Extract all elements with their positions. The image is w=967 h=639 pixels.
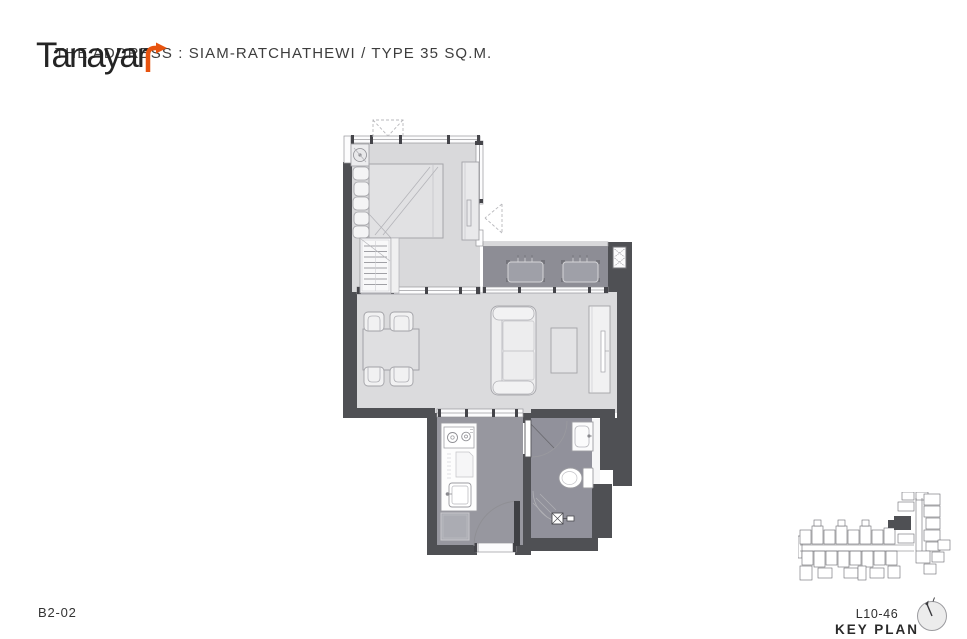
toilet	[559, 468, 593, 488]
bent-arrow-up-right-icon	[141, 41, 168, 73]
key-plan-building-drawing	[798, 492, 956, 604]
pillows	[353, 167, 369, 238]
sofa	[491, 306, 536, 395]
north-compass-icon	[912, 595, 952, 635]
bed	[369, 164, 443, 238]
closet	[462, 162, 479, 240]
coffee-table	[551, 328, 577, 373]
wash-basin	[572, 422, 593, 451]
stove	[444, 427, 474, 448]
brand-logo-text: Tanayar	[36, 38, 147, 73]
refrigerator	[441, 513, 469, 540]
louver-vent	[613, 247, 626, 268]
sink	[446, 483, 471, 507]
brand-logo: Tanayar	[36, 38, 168, 73]
floorplan-page: THE ADDRESS : SIAM-RATCHATHEWI / TYPE 35…	[0, 0, 967, 639]
wardrobe	[360, 238, 399, 293]
tv-console	[589, 306, 610, 393]
dining-table	[363, 329, 419, 370]
key-plan-unit-highlight	[888, 516, 911, 530]
unit-code-label: B2-02	[38, 605, 77, 620]
fan-coil-unit	[351, 144, 369, 166]
kitchen-counter	[441, 423, 477, 511]
floor-plan-drawing	[335, 110, 645, 560]
